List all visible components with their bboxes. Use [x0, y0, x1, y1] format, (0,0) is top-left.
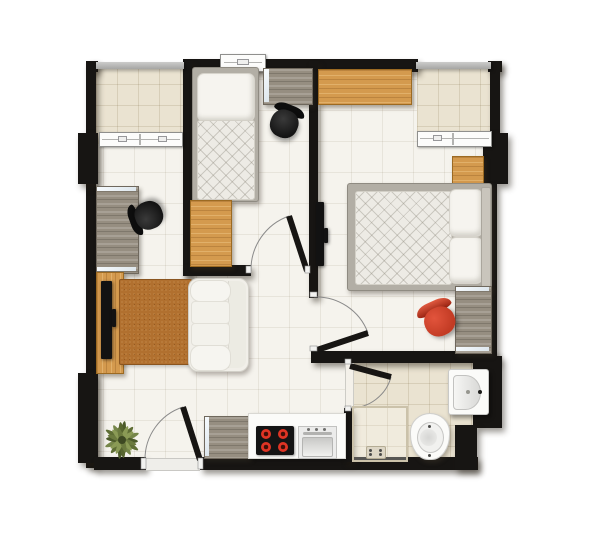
bed-pillow: [449, 189, 483, 237]
balcony-right-window: [417, 131, 492, 147]
sofa-cushion: [191, 323, 230, 346]
burner: [278, 429, 288, 439]
basin-faucet: [478, 390, 482, 394]
drain-bolt: [379, 449, 382, 452]
sofa-armrest: [190, 280, 231, 302]
window-rail: [102, 139, 180, 140]
tv-mount: [112, 309, 116, 327]
sofa-cushion: [191, 301, 230, 324]
toilet: [410, 413, 450, 460]
rug: [119, 279, 192, 365]
drain-bolt: [379, 453, 382, 456]
burner: [261, 442, 271, 452]
entrance-threshold: [146, 458, 200, 471]
toilet-button: [428, 425, 431, 428]
living-room-tv: [101, 281, 112, 359]
quilted-duvet: [197, 120, 255, 200]
sink-basin: [302, 437, 333, 457]
headboard: [481, 187, 491, 289]
gray-sideboard: [263, 68, 313, 105]
desk-edge: [97, 267, 136, 271]
desk-edge: [97, 187, 136, 191]
wall-bathroom-step: [455, 425, 477, 470]
washbasin: [448, 369, 489, 415]
tv-mount: [324, 228, 328, 243]
balcony-right-railing: [416, 62, 491, 69]
sofa: [188, 278, 249, 372]
balcony-left-window: [99, 132, 183, 147]
potted-plant: [99, 418, 145, 462]
exterior-mask: [477, 424, 547, 514]
bathroom-threshold: [345, 363, 354, 408]
double-bed: [347, 183, 492, 291]
cabinet-edge: [205, 417, 209, 456]
window-handle: [118, 136, 127, 142]
wall-balcony-right-side: [490, 61, 500, 134]
toilet-hinge: [428, 454, 431, 457]
kitchen-cabinet: [204, 416, 250, 459]
bed-pillow: [197, 73, 255, 122]
kitchen-sink: [298, 426, 337, 459]
wooden-dresser-bed-foot: [190, 200, 232, 267]
faucet-knob: [323, 428, 326, 431]
window-handle: [237, 59, 249, 65]
faucet-knob: [307, 428, 310, 431]
basin-drain: [466, 390, 470, 394]
faucet: [303, 432, 332, 435]
sideboard-edge: [264, 69, 269, 102]
bed-pillow: [449, 237, 483, 284]
burner: [261, 429, 271, 439]
single-bed: [192, 67, 259, 202]
sofa-armrest: [190, 345, 231, 371]
toilet-bowl: [420, 429, 437, 446]
desk-edge: [456, 347, 489, 351]
wall-mounted-tv: [316, 202, 324, 266]
wooden-wardrobe: [318, 69, 412, 105]
wall-pillar-left-1: [78, 133, 98, 184]
floor-plan: [0, 0, 600, 538]
cooktop: [256, 426, 294, 455]
window-mullion: [452, 133, 454, 145]
burner: [278, 442, 288, 452]
window-rail: [420, 138, 489, 139]
window-handle: [433, 135, 442, 141]
floor-drain: [366, 446, 386, 459]
faucet-knob: [315, 428, 318, 431]
drain-bolt: [369, 449, 372, 452]
wall-pillar-left-2: [78, 373, 98, 463]
double-mattress: [355, 191, 452, 285]
desk-edge: [456, 287, 489, 291]
drain-bolt: [369, 453, 372, 456]
balcony-left-railing: [96, 62, 184, 69]
window-handle: [158, 136, 167, 142]
